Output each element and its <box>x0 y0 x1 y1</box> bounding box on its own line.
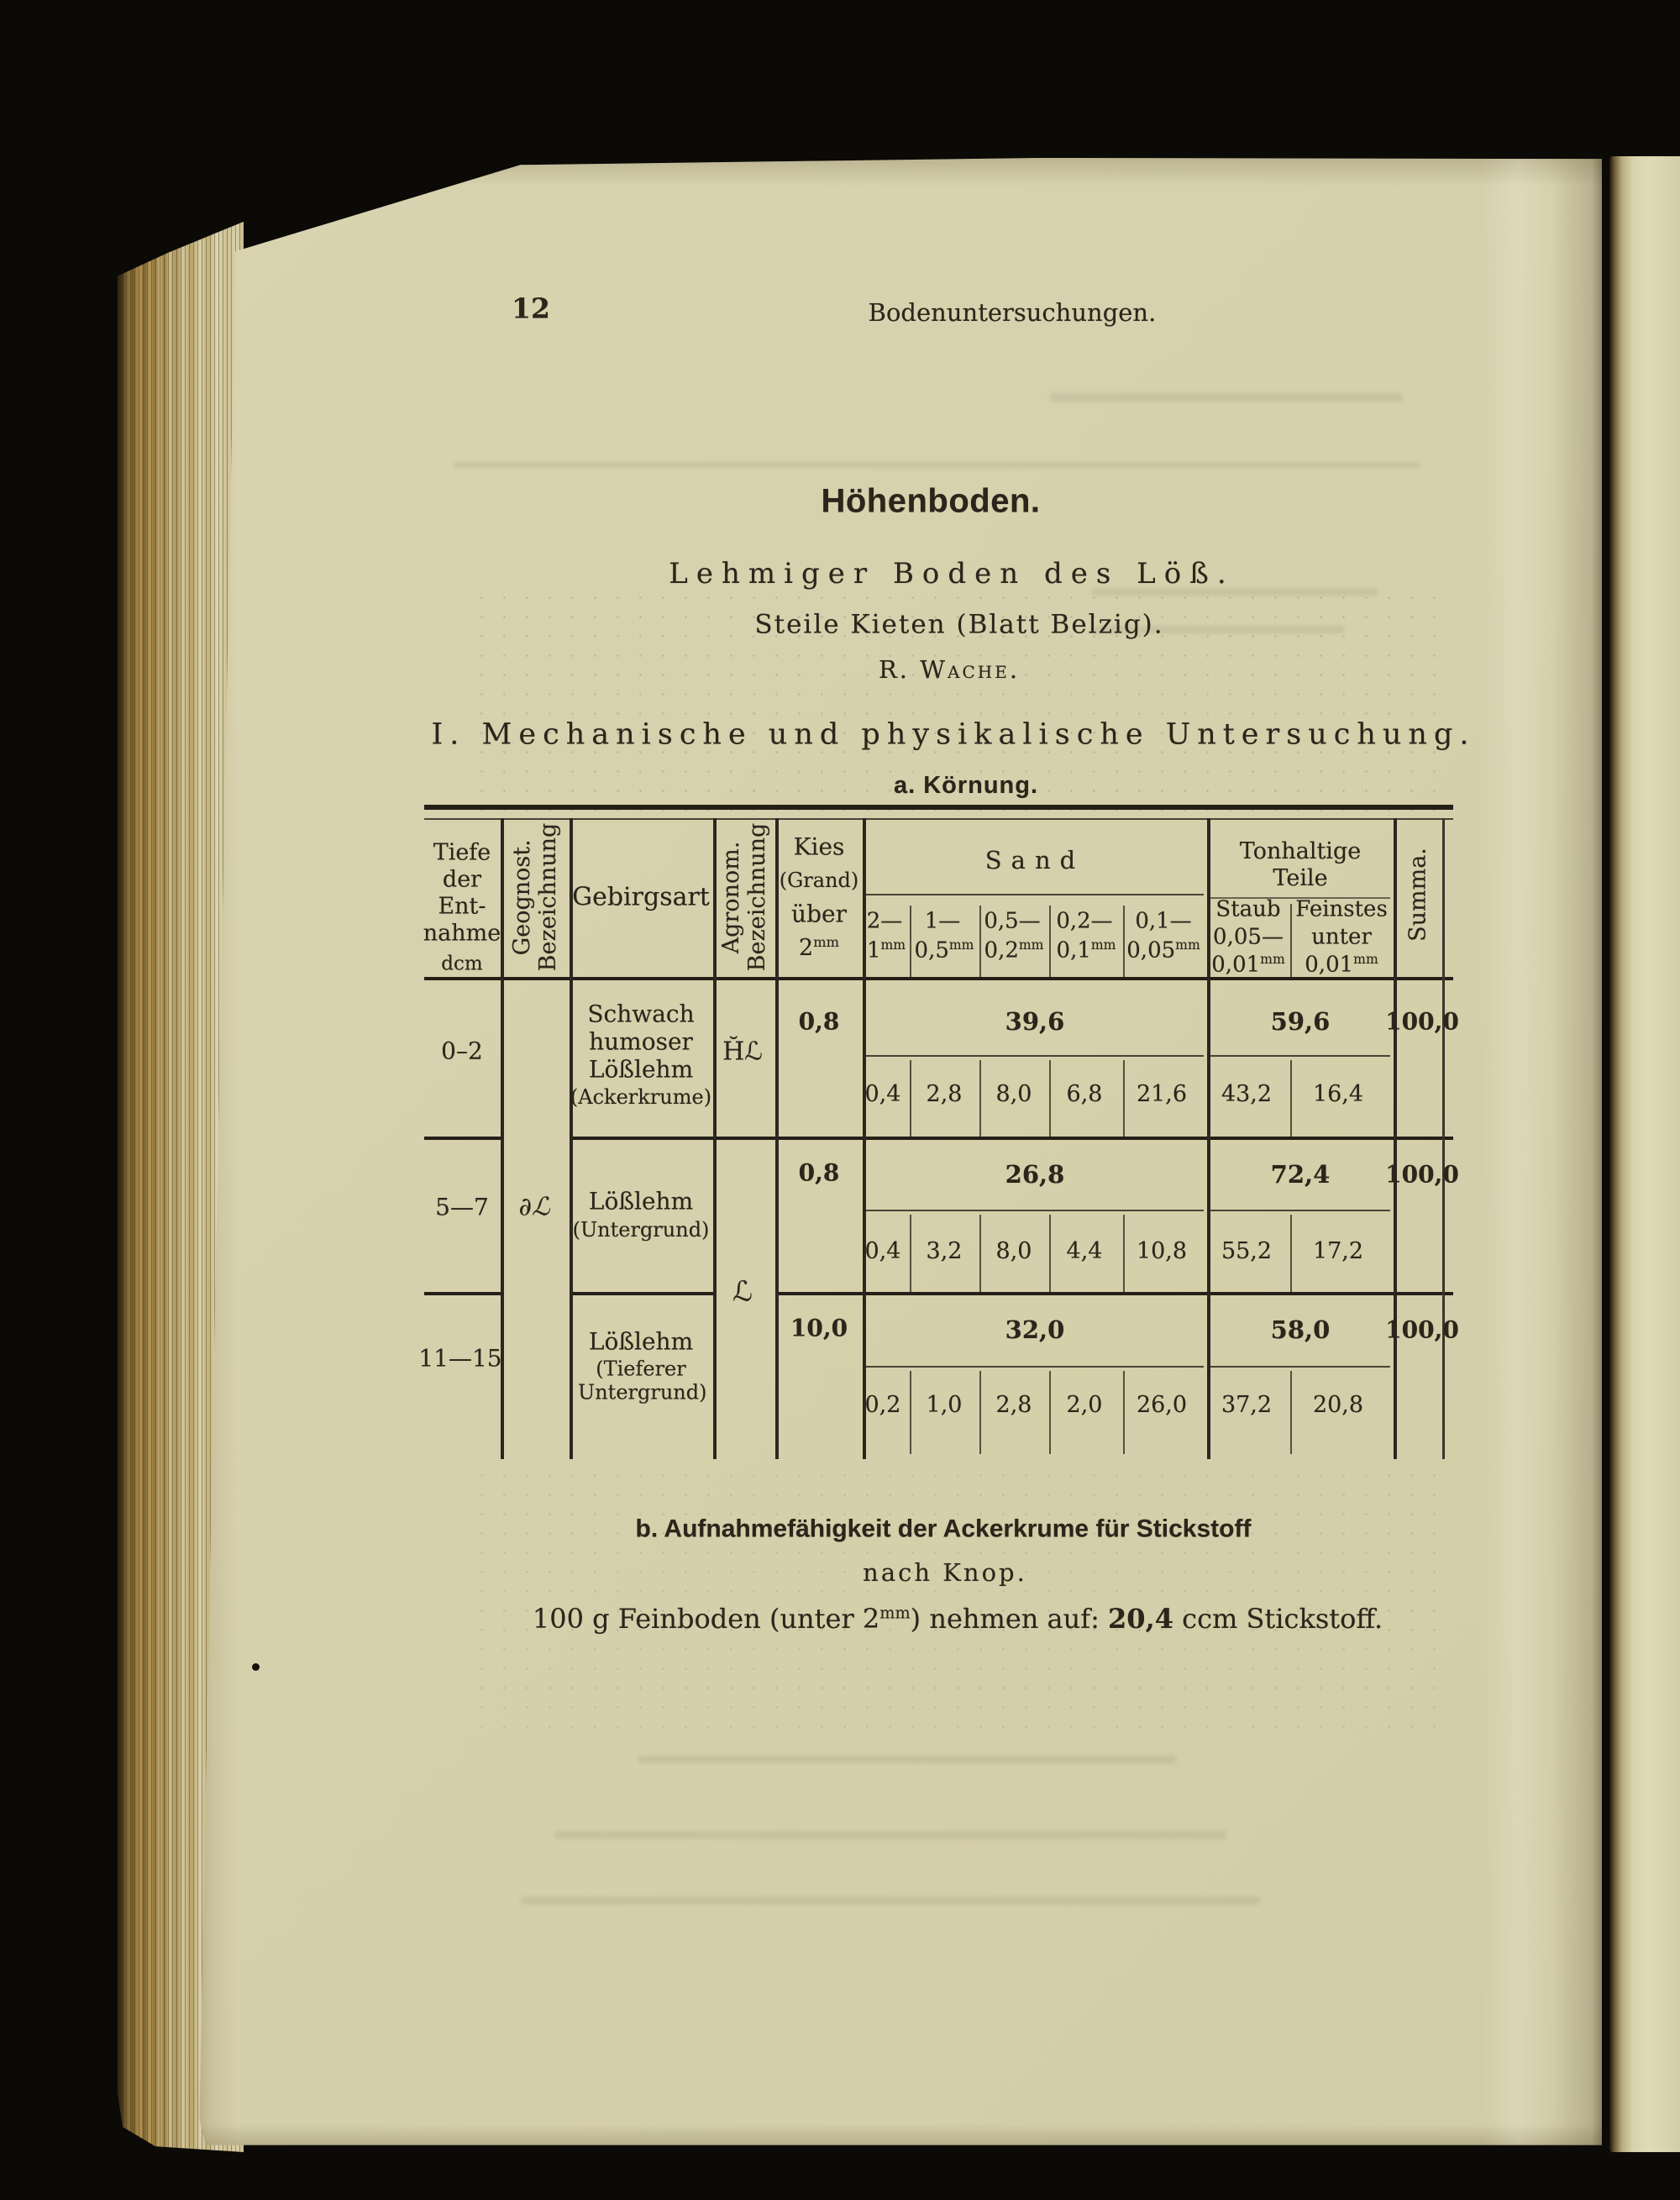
row-kies: 0,8 <box>799 1158 840 1186</box>
sand-col-bottom: 0,1mm <box>1057 938 1116 964</box>
sand-col-unit: mm <box>1091 937 1116 953</box>
col-line <box>775 818 779 1459</box>
row-sand-value: 8,0 <box>996 1238 1032 1265</box>
row-depth: 0–2 <box>441 1037 483 1064</box>
header-kies-2: (Grand) <box>780 869 859 892</box>
stickstoff-result-line: 100 g Feinboden (unter 2mm) nehmen auf: … <box>533 1604 1383 1636</box>
row-sand-value: 4,4 <box>1067 1238 1103 1265</box>
row-divider <box>570 1137 1453 1140</box>
subrow-rule <box>1210 1366 1390 1368</box>
subrow-rule <box>1210 1210 1390 1211</box>
row-kies: 10,0 <box>790 1314 848 1342</box>
sand-col-top: 0,2— <box>1056 909 1112 935</box>
sand-divider <box>979 1215 981 1292</box>
sand-col-size: 1 <box>867 938 881 963</box>
header-kies-3: über <box>791 900 847 927</box>
sand-col-unit: mm <box>949 937 974 953</box>
row-divider <box>424 1137 501 1140</box>
scanned-book-page: 12 Bodenuntersuchungen. Höhenboden. Lehm… <box>0 0 1680 2200</box>
kies-size-unit: mm <box>813 934 839 950</box>
sand-col-unit: mm <box>1175 937 1200 953</box>
row-depth: 5—7 <box>435 1193 489 1221</box>
sand-col-bottom: 0,05mm <box>1126 938 1200 964</box>
sand-divider <box>979 1060 981 1137</box>
row-gebirgsart: Schwach humoser Lößlehm <box>569 1000 713 1083</box>
row-kies: 0,8 <box>799 1007 840 1035</box>
result-text-mid: ) nehmen auf: <box>911 1603 1108 1635</box>
sand-col-size: 0,1 <box>1057 938 1091 963</box>
header-gebirgsart: Gebirgsart <box>572 882 710 911</box>
result-sup-unit: mm <box>879 1603 910 1622</box>
header-staub-3: 0,01mm <box>1211 953 1284 979</box>
sand-divider <box>1123 1060 1125 1137</box>
col-line <box>1394 818 1397 1459</box>
row-divider <box>570 1292 713 1295</box>
table-right-border <box>1442 818 1445 1459</box>
result-text-pre: 100 g Feinboden (unter 2 <box>533 1603 879 1635</box>
row-geognost-symbol: ∂ℒ <box>518 1192 549 1221</box>
header-feinstes-3: 0,01mm <box>1305 953 1378 979</box>
page-number: 12 <box>512 293 550 326</box>
bleed-through <box>638 1756 1176 1763</box>
subrow-rule <box>866 1210 1204 1211</box>
col-line <box>1207 818 1210 1459</box>
subrow-rule <box>866 1055 1204 1057</box>
table-top-rule-thick <box>424 805 1453 810</box>
row-ton-total: 72,4 <box>1271 1160 1331 1189</box>
row-sand-value: 8,0 <box>996 1081 1032 1108</box>
sand-col-bottom: 0,2mm <box>984 938 1044 964</box>
subrow-rule <box>1210 1055 1390 1057</box>
row-gebirgsart-note: (Tieferer Untergrund) <box>578 1357 704 1405</box>
header-summa: Summa. <box>1404 848 1431 942</box>
row-staub-value: 55,2 <box>1221 1238 1272 1265</box>
header-staub-1: Staub <box>1215 897 1280 923</box>
row-ton-total: 58,0 <box>1271 1315 1331 1344</box>
header-sand-group: Sand <box>985 846 1084 874</box>
row-gebirgsart-note: (Untergrund) <box>573 1218 710 1242</box>
running-title: Bodenuntersuchungen. <box>869 298 1157 327</box>
row-summa: 100,0 <box>1385 1160 1459 1188</box>
section-heading: I. Mechanische und physikalische Untersu… <box>431 717 1475 752</box>
sand-col-size: 0,5 <box>915 938 949 963</box>
row-gebirgsart-note: (Ackerkrume) <box>570 1085 711 1109</box>
ink-speck <box>252 1663 260 1671</box>
result-text-post: ccm Stickstoff. <box>1173 1603 1383 1635</box>
sand-divider <box>1049 1371 1051 1454</box>
sand-divider <box>1049 906 1051 977</box>
row-summa: 100,0 <box>1385 1007 1459 1035</box>
row-sand-value: 10,8 <box>1137 1238 1187 1265</box>
row-sand-value: 6,8 <box>1067 1081 1103 1108</box>
header-kies-size: 2mm <box>799 935 839 962</box>
feinstes-size: 0,01 <box>1305 953 1353 978</box>
sand-col-top: 2— <box>867 909 903 935</box>
kies-size-value: 2 <box>799 935 813 961</box>
bleed-through <box>521 1897 1260 1904</box>
row-sand-total: 39,6 <box>1005 1007 1065 1036</box>
header-geognost: Geognost. Bezeichnung <box>509 823 561 972</box>
col-line <box>863 818 866 1459</box>
sand-group-rule <box>866 894 1204 895</box>
sand-col-bottom: 1mm <box>867 938 906 964</box>
ton-divider <box>1290 1215 1292 1292</box>
bleed-through <box>1050 393 1403 402</box>
row-sand-value: 0,2 <box>865 1392 901 1419</box>
col-line <box>713 818 717 1459</box>
col-line <box>570 818 573 1459</box>
sand-divider <box>910 1371 911 1454</box>
row-sand-value: 2,8 <box>927 1081 963 1108</box>
bleed-through <box>554 1831 1226 1839</box>
page-title: Höhenboden. <box>821 481 1040 521</box>
facing-page-sliver <box>1609 156 1680 2152</box>
header-feinstes-2: unter <box>1311 925 1372 951</box>
feinstes-unit: mm <box>1353 952 1378 967</box>
sand-col-unit: mm <box>880 937 906 953</box>
sand-col-size: 0,2 <box>984 938 1019 963</box>
bleed-through <box>454 462 1420 468</box>
row-gebirgsart: Lößlehm <box>589 1187 693 1215</box>
ton-divider <box>1290 1371 1292 1454</box>
row-agronom-symbol: H̆ℒ <box>722 1037 763 1066</box>
table-top-rule-thin <box>424 818 1453 820</box>
sand-divider <box>910 906 911 977</box>
sand-col-top: 1— <box>925 909 961 935</box>
header-ton-group: Tonhaltige Teile <box>1240 838 1361 892</box>
row-sand-value: 2,8 <box>996 1392 1032 1419</box>
sand-divider <box>979 1371 981 1454</box>
row-gebirgsart: Lößlehm <box>589 1327 693 1355</box>
sand-col-unit: mm <box>1019 937 1044 953</box>
header-agronom: Agronom. Bezeichnung <box>718 823 770 972</box>
header-depth-unit: dcm <box>441 953 482 975</box>
sand-divider <box>1049 1060 1051 1137</box>
header-feinstes-1: Feinstes <box>1295 897 1388 923</box>
sand-col-size: 0,05 <box>1126 938 1175 963</box>
row-divider <box>775 1292 1453 1295</box>
row-staub-value: 37,2 <box>1221 1392 1272 1419</box>
row-feinstes-value: 16,4 <box>1313 1081 1363 1108</box>
ton-divider <box>1290 1060 1292 1137</box>
sand-divider <box>1049 1215 1051 1292</box>
row-summa: 100,0 <box>1385 1315 1459 1343</box>
page-shading <box>197 158 1602 2147</box>
section-b-heading: b. Aufnahmefähigkeit der Ackerkrume für … <box>636 1514 1252 1543</box>
row-sand-value: 0,4 <box>865 1081 901 1108</box>
sand-divider <box>1123 1215 1125 1292</box>
sand-col-top: 0,1— <box>1135 909 1191 935</box>
row-sand-total: 32,0 <box>1005 1315 1065 1344</box>
subrow-rule <box>866 1366 1204 1368</box>
author-line: R. Wache. <box>879 655 1020 684</box>
row-staub-value: 43,2 <box>1221 1081 1272 1108</box>
row-sand-value: 3,2 <box>927 1238 963 1265</box>
header-staub-2: 0,05— <box>1213 925 1284 951</box>
page-paper <box>197 158 1602 2147</box>
sand-divider <box>910 1215 911 1292</box>
section-b-subheading: nach Knop. <box>863 1558 1027 1587</box>
row-ton-total: 59,6 <box>1271 1007 1331 1036</box>
sand-col-bottom: 0,5mm <box>915 938 974 964</box>
row-sand-value: 26,0 <box>1137 1392 1187 1419</box>
sand-divider <box>1123 1371 1125 1454</box>
row-divider <box>424 1292 501 1295</box>
staub-unit: mm <box>1260 952 1285 967</box>
row-sand-value: 2,0 <box>1067 1392 1103 1419</box>
sand-col-top: 0,5— <box>984 909 1040 935</box>
result-value: 20,4 <box>1108 1603 1173 1635</box>
header-depth: Tiefe der Ent- nahme <box>423 839 501 946</box>
row-sand-value: 21,6 <box>1137 1081 1187 1108</box>
location-line: Steile Kieten (Blatt Belzig). <box>754 610 1163 641</box>
sand-divider <box>979 906 981 977</box>
row-sand-value: 1,0 <box>927 1392 963 1419</box>
header-kies-1: Kies <box>794 832 845 860</box>
row-sand-total: 26,8 <box>1005 1160 1065 1189</box>
row-feinstes-value: 20,8 <box>1313 1392 1363 1419</box>
subsection-heading: a. Körnung. <box>894 771 1038 800</box>
row-feinstes-value: 17,2 <box>1313 1238 1363 1265</box>
row-sand-value: 0,4 <box>865 1238 901 1265</box>
staub-size: 0,01 <box>1211 953 1260 978</box>
sand-divider <box>1123 906 1125 977</box>
table-header-rule <box>424 977 1453 980</box>
row-agronom-symbol-span: ℒ <box>732 1276 753 1309</box>
ton-divider <box>1290 904 1292 977</box>
row-depth: 11—15 <box>418 1344 501 1372</box>
subtitle: Lehmiger Boden des Löß. <box>669 557 1234 591</box>
sand-divider <box>910 1060 911 1137</box>
